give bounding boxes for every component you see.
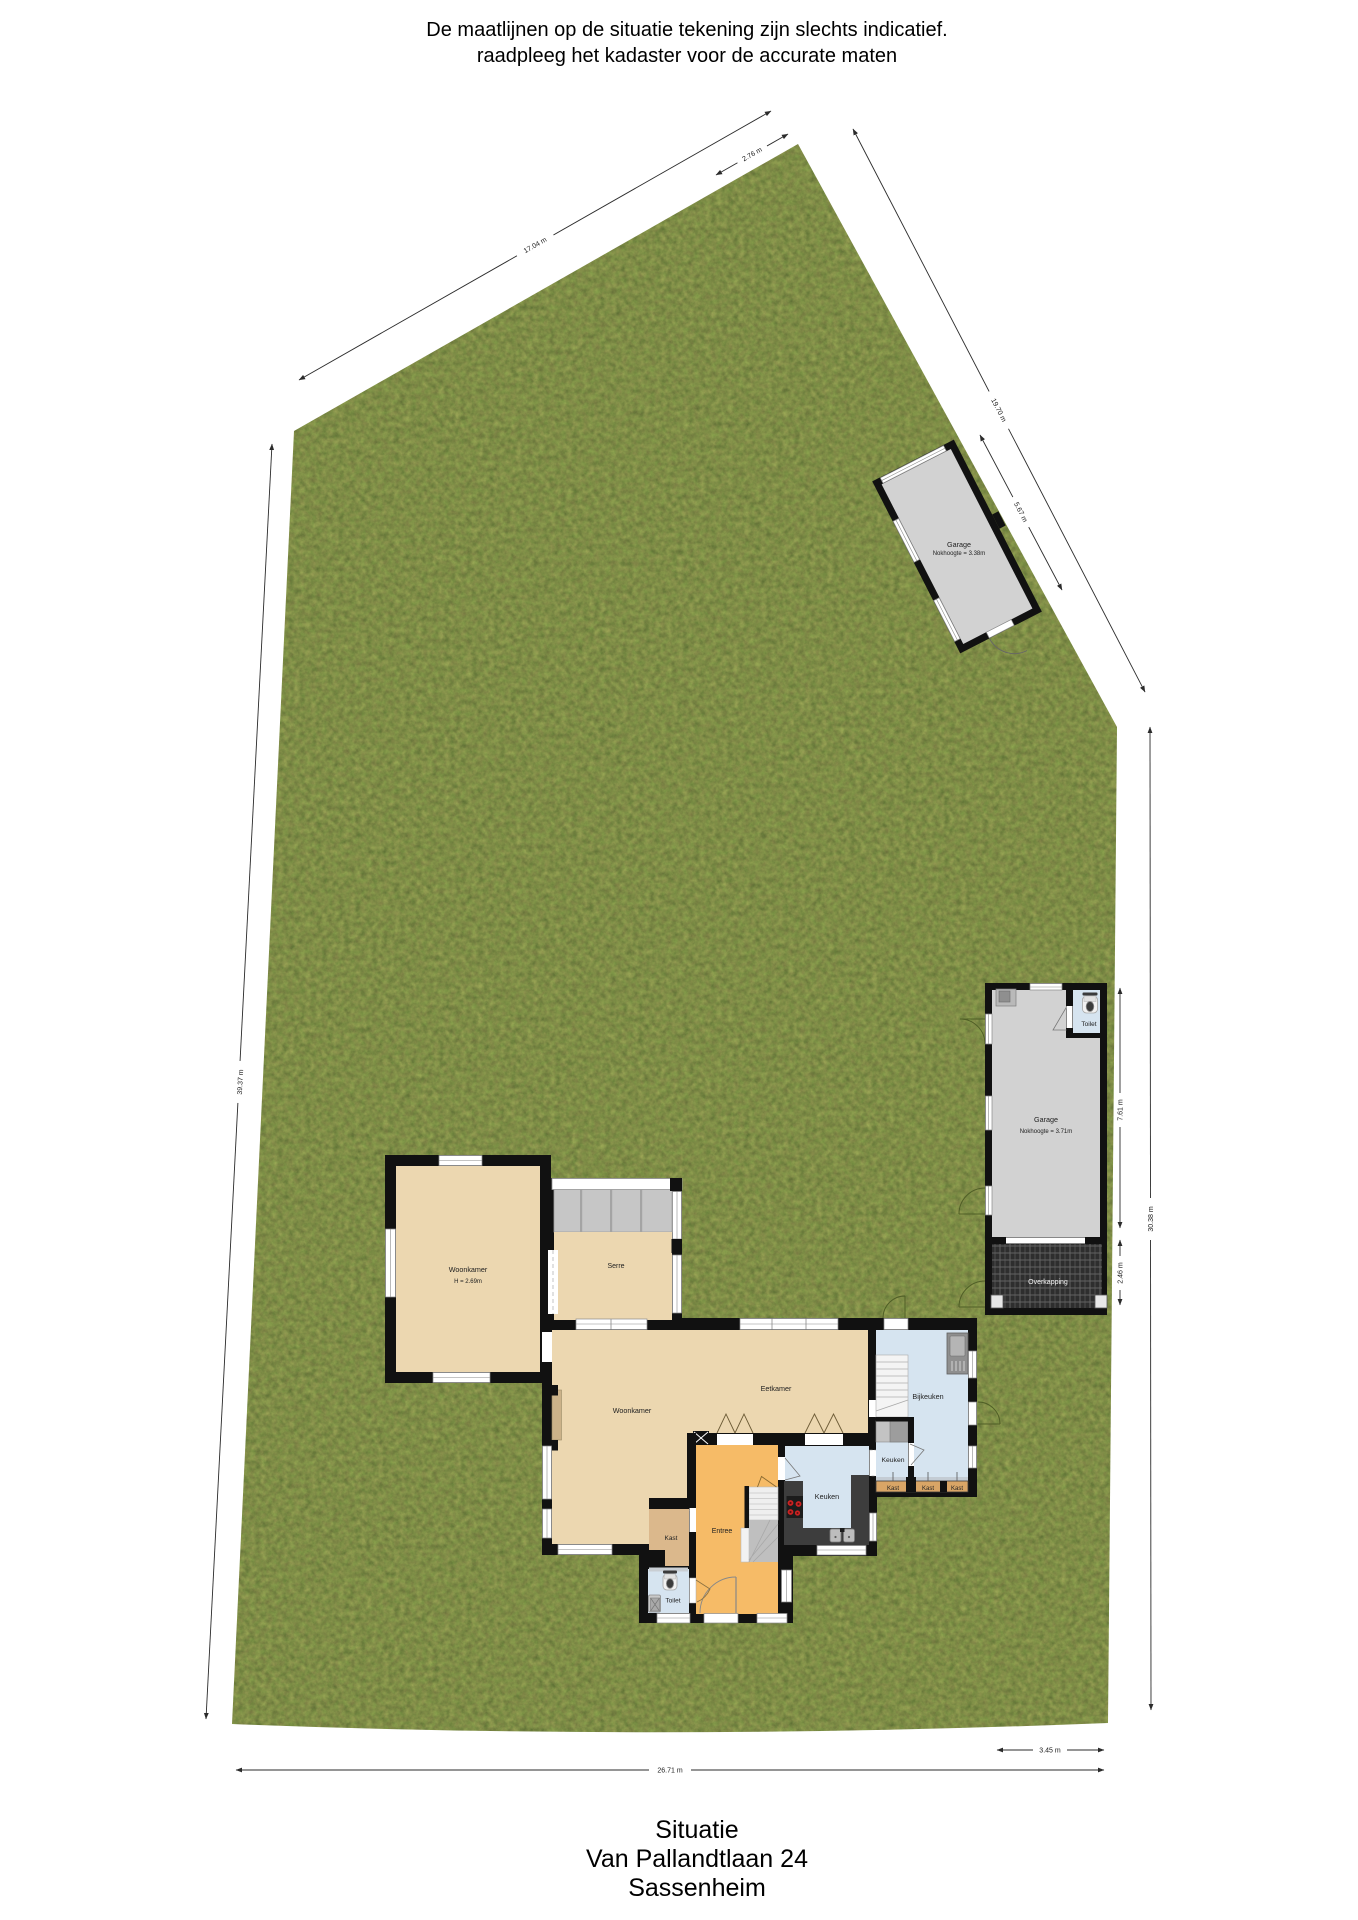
- svg-text:Woonkamer: Woonkamer: [613, 1406, 652, 1415]
- svg-text:Toilet: Toilet: [1081, 1021, 1096, 1028]
- svg-text:Bijkeuken: Bijkeuken: [912, 1392, 943, 1401]
- svg-text:raadpleeg het kadaster voor de: raadpleeg het kadaster voor de accurate …: [477, 45, 897, 67]
- svg-text:De maatlijnen op de situatie t: De maatlijnen op de situatie tekening zi…: [426, 19, 947, 41]
- svg-text:39.37 m: 39.37 m: [237, 1069, 245, 1095]
- svg-text:26.71 m: 26.71 m: [657, 1768, 682, 1775]
- svg-text:Garage: Garage: [947, 540, 971, 549]
- svg-text:Nokhoogte = 3.71m: Nokhoogte = 3.71m: [1020, 1129, 1073, 1135]
- svg-text:Overkapping: Overkapping: [1028, 1279, 1068, 1286]
- svg-text:Woonkamer: Woonkamer: [449, 1265, 488, 1274]
- svg-text:Kast: Kast: [951, 1486, 963, 1492]
- svg-text:Kast: Kast: [922, 1486, 934, 1492]
- svg-text:30.38 m: 30.38 m: [1148, 1206, 1155, 1231]
- svg-text:Sassenheim: Sassenheim: [628, 1874, 766, 1902]
- svg-text:Toilet: Toilet: [665, 1598, 680, 1605]
- svg-text:H = 2.69m: H = 2.69m: [454, 1279, 482, 1285]
- svg-text:Keuken: Keuken: [881, 1457, 904, 1464]
- svg-text:Entree: Entree: [712, 1528, 733, 1535]
- svg-text:2.46 m: 2.46 m: [1118, 1262, 1125, 1284]
- svg-text:Keuken: Keuken: [815, 1492, 839, 1501]
- svg-text:Kast: Kast: [887, 1486, 899, 1492]
- svg-text:Eetkamer: Eetkamer: [761, 1384, 792, 1393]
- svg-text:7.61 m: 7.61 m: [1118, 1099, 1125, 1121]
- svg-text:Serre: Serre: [607, 1263, 624, 1270]
- svg-text:3.45 m: 3.45 m: [1039, 1748, 1061, 1755]
- svg-text:Situatie: Situatie: [655, 1816, 738, 1844]
- svg-text:Van Pallandtlaan 24: Van Pallandtlaan 24: [586, 1845, 808, 1873]
- svg-text:Kast: Kast: [664, 1535, 677, 1542]
- svg-text:Nokhoogte = 3.38m: Nokhoogte = 3.38m: [933, 551, 986, 557]
- svg-text:Garage: Garage: [1034, 1115, 1058, 1124]
